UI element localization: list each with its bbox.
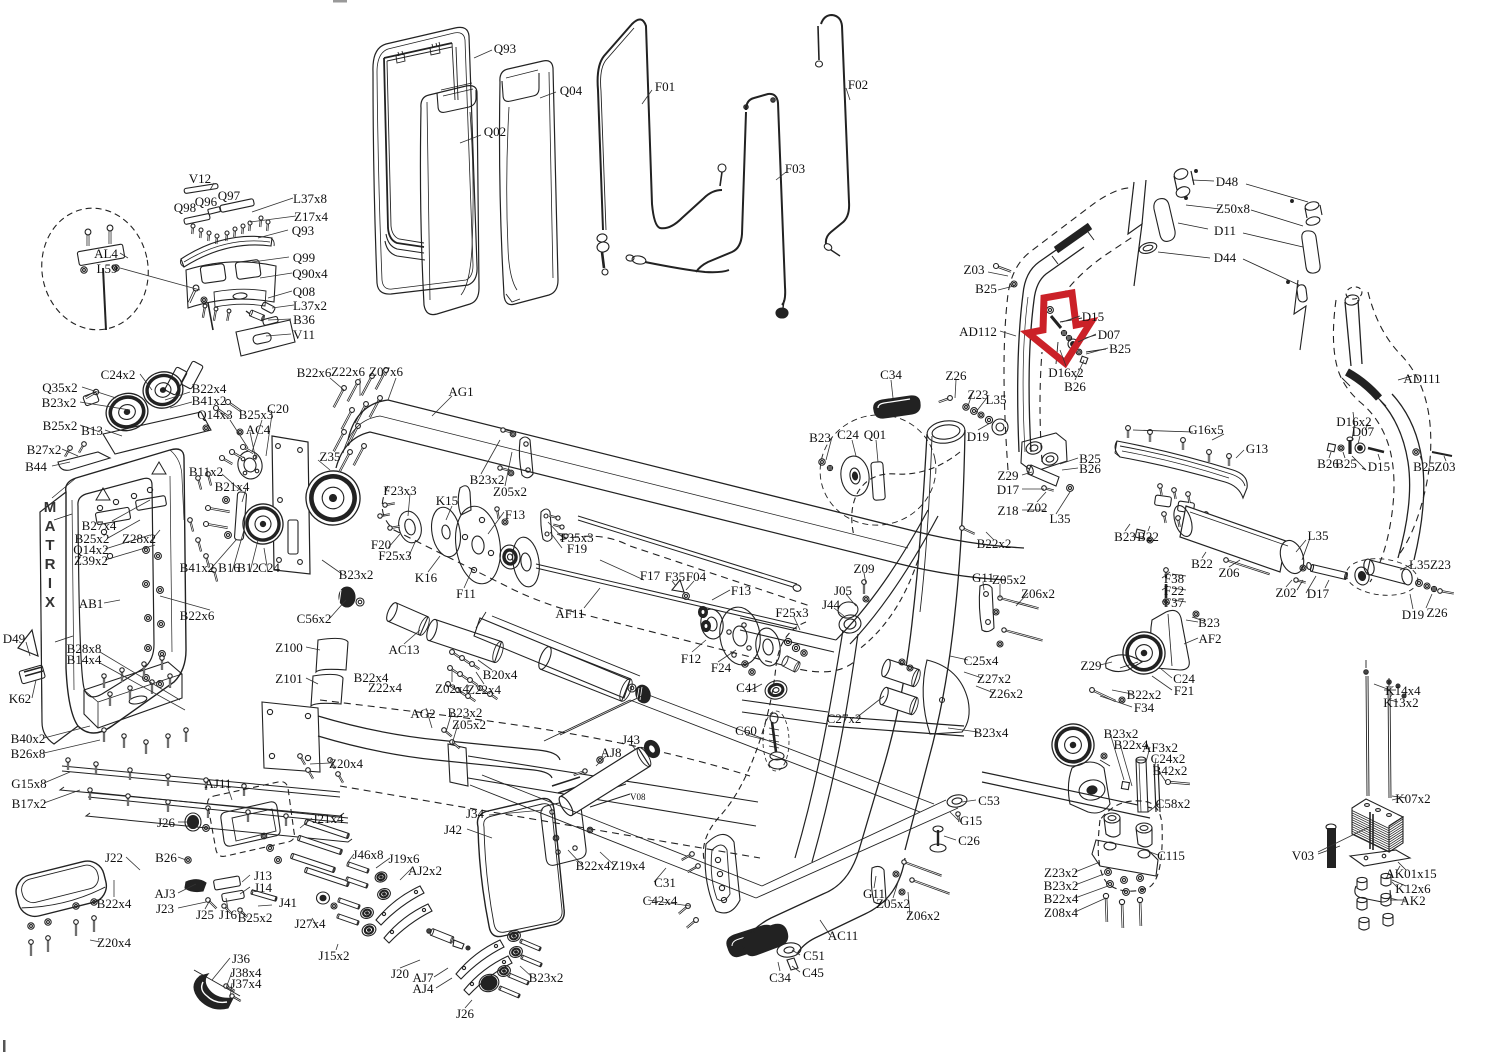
svg-text:F25x3: F25x3 [775, 605, 808, 620]
svg-text:B22: B22 [1191, 556, 1213, 571]
svg-text:B23x2: B23x2 [339, 567, 374, 582]
svg-text:Z26x2: Z26x2 [989, 686, 1023, 701]
svg-text:F11: F11 [456, 586, 476, 601]
svg-text:B26x8: B26x8 [11, 746, 46, 761]
svg-text:J34: J34 [466, 806, 485, 821]
svg-text:J05: J05 [834, 583, 852, 598]
svg-text:C31: C31 [654, 875, 676, 890]
svg-text:K16: K16 [415, 570, 438, 585]
svg-text:A: A [45, 518, 56, 535]
svg-text:G16x5: G16x5 [1188, 422, 1223, 437]
svg-text:Z26: Z26 [1427, 605, 1448, 620]
svg-text:J27x4: J27x4 [294, 916, 326, 931]
svg-text:D17: D17 [1307, 586, 1330, 601]
svg-text:D17: D17 [997, 482, 1020, 497]
svg-text:F21: F21 [1174, 683, 1194, 698]
svg-text:B40x2: B40x2 [11, 731, 46, 746]
svg-text:AF11: AF11 [555, 606, 584, 621]
svg-text:J25: J25 [196, 907, 214, 922]
svg-text:B23: B23 [1198, 615, 1220, 630]
svg-text:Q04: Q04 [560, 83, 583, 98]
svg-text:Z22x4: Z22x4 [368, 680, 402, 695]
svg-text:D15: D15 [1082, 309, 1104, 324]
svg-text:V03: V03 [1292, 848, 1314, 863]
svg-text:G11: G11 [972, 570, 994, 585]
svg-text:Q99: Q99 [293, 250, 315, 265]
svg-text:C20: C20 [267, 401, 289, 416]
svg-text:C42x4: C42x4 [643, 893, 678, 908]
svg-text:Z101: Z101 [275, 671, 302, 686]
svg-text:Z07x6: Z07x6 [369, 364, 403, 379]
svg-text:B14x4: B14x4 [67, 652, 102, 667]
svg-text:AJ11: AJ11 [205, 776, 232, 791]
svg-text:F24: F24 [711, 660, 732, 675]
svg-text:F04: F04 [686, 569, 707, 584]
svg-text:Z09: Z09 [854, 561, 875, 576]
svg-text:Z27x2: Z27x2 [977, 671, 1011, 686]
svg-text:I: I [48, 575, 52, 592]
svg-text:B21x4: B21x4 [215, 479, 250, 494]
svg-text:B22: B22 [1137, 529, 1159, 544]
svg-text:K07x2: K07x2 [1395, 791, 1430, 806]
svg-text:AJ2x2: AJ2x2 [408, 863, 442, 878]
svg-text:Z50x8: Z50x8 [1216, 201, 1250, 216]
svg-text:Z20x4: Z20x4 [329, 756, 363, 771]
svg-text:Z35: Z35 [320, 449, 341, 464]
svg-text:C26: C26 [958, 833, 980, 848]
svg-text:AB1: AB1 [79, 596, 104, 611]
svg-text:B23x2: B23x2 [42, 395, 77, 410]
svg-text:Z05x2: Z05x2 [876, 896, 910, 911]
svg-text:Z02: Z02 [1027, 500, 1048, 515]
svg-text:D44: D44 [1214, 250, 1237, 265]
svg-text:J26: J26 [456, 1006, 475, 1021]
svg-text:D07: D07 [1098, 327, 1121, 342]
svg-text:L35: L35 [1050, 511, 1071, 526]
svg-text:Q01: Q01 [864, 427, 886, 442]
svg-text:AD111: AD111 [1403, 371, 1440, 386]
svg-text:C58x2: C58x2 [1156, 796, 1191, 811]
svg-text:C56x2: C56x2 [297, 611, 332, 626]
svg-text:J16: J16 [219, 907, 238, 922]
svg-text:Z06x2: Z06x2 [1021, 586, 1055, 601]
svg-text:Q90x4: Q90x4 [292, 266, 328, 281]
svg-text:B25x2: B25x2 [43, 418, 78, 433]
svg-text:Z03: Z03 [964, 262, 985, 277]
svg-text:B12: B12 [237, 560, 259, 575]
svg-text:K62: K62 [9, 691, 31, 706]
svg-text:AJ8: AJ8 [601, 745, 622, 760]
svg-text:C51: C51 [803, 948, 825, 963]
svg-text:F02: F02 [848, 77, 868, 92]
svg-text:F34: F34 [1134, 700, 1155, 715]
svg-text:AK01x15: AK01x15 [1385, 866, 1436, 881]
svg-text:F13: F13 [505, 507, 525, 522]
svg-text:AC11: AC11 [828, 928, 859, 943]
svg-text:D07: D07 [1352, 424, 1375, 439]
svg-text:C24: C24 [258, 560, 280, 575]
svg-text:Q08: Q08 [293, 284, 315, 299]
svg-text:D48: D48 [1216, 174, 1238, 189]
svg-text:M: M [44, 499, 57, 516]
svg-text:B41x2: B41x2 [180, 560, 215, 575]
svg-text:C115: C115 [1157, 848, 1185, 863]
svg-text:Z05x2: Z05x2 [992, 572, 1026, 587]
svg-text:Q93: Q93 [494, 41, 516, 56]
svg-text:C60: C60 [735, 723, 757, 738]
svg-text:G15: G15 [960, 813, 982, 828]
svg-text:AC13: AC13 [388, 642, 419, 657]
svg-text:Z02: Z02 [1276, 585, 1297, 600]
svg-text:J26: J26 [157, 815, 176, 830]
svg-text:F37: F37 [1164, 595, 1185, 610]
svg-text:Q14x3: Q14x3 [197, 407, 232, 422]
svg-text:C53: C53 [978, 793, 1000, 808]
svg-text:F12: F12 [681, 651, 701, 666]
svg-text:R: R [45, 556, 56, 573]
svg-text:B22x4: B22x4 [97, 896, 132, 911]
svg-text:D16x2: D16x2 [1048, 365, 1083, 380]
svg-text:AG2: AG2 [410, 706, 435, 721]
svg-text:B22x4: B22x4 [1044, 891, 1079, 906]
svg-text:B41x2: B41x2 [192, 393, 227, 408]
svg-text:D11: D11 [1214, 223, 1236, 238]
svg-text:AF2: AF2 [1198, 631, 1221, 646]
svg-text:Z03: Z03 [1435, 459, 1456, 474]
svg-text:L35: L35 [1308, 528, 1329, 543]
svg-text:L37x2: L37x2 [293, 298, 327, 313]
svg-text:B20x4: B20x4 [483, 667, 518, 682]
svg-text:F23x3: F23x3 [383, 483, 416, 498]
svg-text:C45: C45 [802, 965, 824, 980]
svg-text:B22x6: B22x6 [297, 365, 332, 380]
svg-text:D49: D49 [3, 631, 25, 646]
svg-text:J20: J20 [391, 966, 409, 981]
svg-text:B42x2: B42x2 [1153, 763, 1188, 778]
svg-text:AJ4: AJ4 [413, 981, 434, 996]
svg-text:Z08x4: Z08x4 [1044, 905, 1078, 920]
svg-text:J43: J43 [622, 732, 640, 747]
svg-text:Q35x2: Q35x2 [42, 380, 77, 395]
svg-text:B25: B25 [975, 281, 997, 296]
svg-text:B23x2: B23x2 [529, 970, 564, 985]
svg-text:F01: F01 [655, 79, 675, 94]
svg-text:L35Z23: L35Z23 [1409, 557, 1451, 572]
svg-text:T: T [45, 537, 54, 554]
svg-text:J21x4: J21x4 [312, 811, 344, 826]
svg-text:F17: F17 [640, 568, 661, 583]
svg-text:J22: J22 [105, 850, 123, 865]
svg-text:K13x2: K13x2 [1383, 695, 1418, 710]
svg-text:J37x4: J37x4 [230, 976, 262, 991]
svg-text:Z17x4: Z17x4 [294, 209, 328, 224]
svg-text:J44: J44 [822, 597, 841, 612]
svg-text:AL4: AL4 [94, 246, 118, 261]
svg-text:B17x2: B17x2 [12, 796, 47, 811]
svg-text:B27x2: B27x2 [27, 442, 62, 457]
svg-text:Q93: Q93 [292, 223, 314, 238]
svg-text:AJ3: AJ3 [155, 886, 176, 901]
svg-text:Q97: Q97 [218, 188, 241, 203]
svg-text:Z05x2: Z05x2 [493, 484, 527, 499]
svg-text:C24: C24 [837, 427, 859, 442]
svg-text:J36: J36 [232, 951, 251, 966]
svg-text:Z100: Z100 [275, 640, 302, 655]
svg-text:F13: F13 [731, 583, 751, 598]
svg-text:Z29: Z29 [998, 468, 1019, 483]
svg-text:AC4: AC4 [246, 422, 271, 437]
svg-text:J41: J41 [279, 895, 297, 910]
svg-text:AD112: AD112 [959, 324, 997, 339]
svg-text:B22x2: B22x2 [977, 536, 1012, 551]
svg-text:C34: C34 [880, 367, 902, 382]
svg-text:D19: D19 [1402, 607, 1424, 622]
svg-text:AG1: AG1 [448, 384, 473, 399]
svg-text:G15x8: G15x8 [11, 776, 46, 791]
svg-text:B23: B23 [1114, 529, 1136, 544]
svg-text:AK2: AK2 [1400, 893, 1425, 908]
svg-text:Z06: Z06 [1219, 565, 1240, 580]
svg-text:F35: F35 [665, 569, 685, 584]
svg-text:B22x6: B22x6 [180, 608, 215, 623]
svg-text:C25x4: C25x4 [964, 653, 999, 668]
svg-text:Z02x4: Z02x4 [435, 681, 469, 696]
svg-text:B25: B25 [1109, 341, 1131, 356]
svg-text:F03: F03 [785, 161, 805, 176]
svg-text:Q98: Q98 [174, 200, 196, 215]
svg-text:B36: B36 [293, 312, 315, 327]
svg-text:Z29: Z29 [1081, 658, 1102, 673]
svg-text:Z06x2: Z06x2 [906, 908, 940, 923]
svg-text:J23: J23 [156, 901, 174, 916]
svg-text:B44: B44 [25, 459, 47, 474]
svg-text:F19: F19 [567, 541, 587, 556]
svg-text:G13: G13 [1246, 441, 1268, 456]
svg-text:Z18: Z18 [998, 503, 1019, 518]
svg-text:Z39x2: Z39x2 [74, 553, 108, 568]
svg-text:K15: K15 [436, 493, 458, 508]
svg-text:Z22x4: Z22x4 [467, 682, 501, 697]
svg-text:V11: V11 [293, 327, 315, 342]
svg-text:Z28x2: Z28x2 [122, 531, 156, 546]
svg-text:Q02: Q02 [484, 124, 506, 139]
svg-text:J14: J14 [254, 880, 273, 895]
svg-text:C34: C34 [769, 970, 791, 985]
svg-text:Z05x2: Z05x2 [452, 717, 486, 732]
svg-text:D19: D19 [967, 429, 989, 444]
svg-text:V12: V12 [189, 171, 211, 186]
svg-text:X: X [45, 594, 55, 611]
svg-text:Z22x6: Z22x6 [331, 364, 365, 379]
svg-text:B26: B26 [1064, 379, 1086, 394]
svg-text:C27x2: C27x2 [827, 711, 862, 726]
svg-text:Z19x4: Z19x4 [611, 858, 645, 873]
svg-text:C41: C41 [736, 680, 758, 695]
svg-text:B11x2: B11x2 [189, 464, 223, 479]
svg-text:L37x8: L37x8 [293, 191, 327, 206]
svg-text:B23x4: B23x4 [974, 725, 1009, 740]
svg-text:J46x8: J46x8 [352, 847, 383, 862]
svg-text:B22x4: B22x4 [576, 858, 611, 873]
svg-text:B26: B26 [155, 850, 177, 865]
svg-text:Z26: Z26 [946, 368, 967, 383]
svg-text:B13: B13 [81, 423, 103, 438]
svg-text:C24x2: C24x2 [101, 367, 136, 382]
svg-text:B25: B25 [1413, 459, 1435, 474]
svg-text:Q96: Q96 [195, 194, 218, 209]
svg-text:B23: B23 [809, 430, 831, 445]
svg-text:F25x3: F25x3 [378, 548, 411, 563]
svg-text:B25x2: B25x2 [238, 910, 273, 925]
svg-text:Z20x4: Z20x4 [97, 935, 131, 950]
svg-text:B26: B26 [1079, 461, 1101, 476]
svg-text:J42: J42 [444, 822, 462, 837]
svg-text:V08: V08 [630, 792, 646, 802]
svg-text:J15x2: J15x2 [318, 948, 349, 963]
svg-text:B25: B25 [1335, 456, 1357, 471]
svg-text:L35: L35 [986, 392, 1007, 407]
svg-text:D15: D15 [1368, 459, 1390, 474]
svg-text:L59: L59 [97, 261, 118, 276]
